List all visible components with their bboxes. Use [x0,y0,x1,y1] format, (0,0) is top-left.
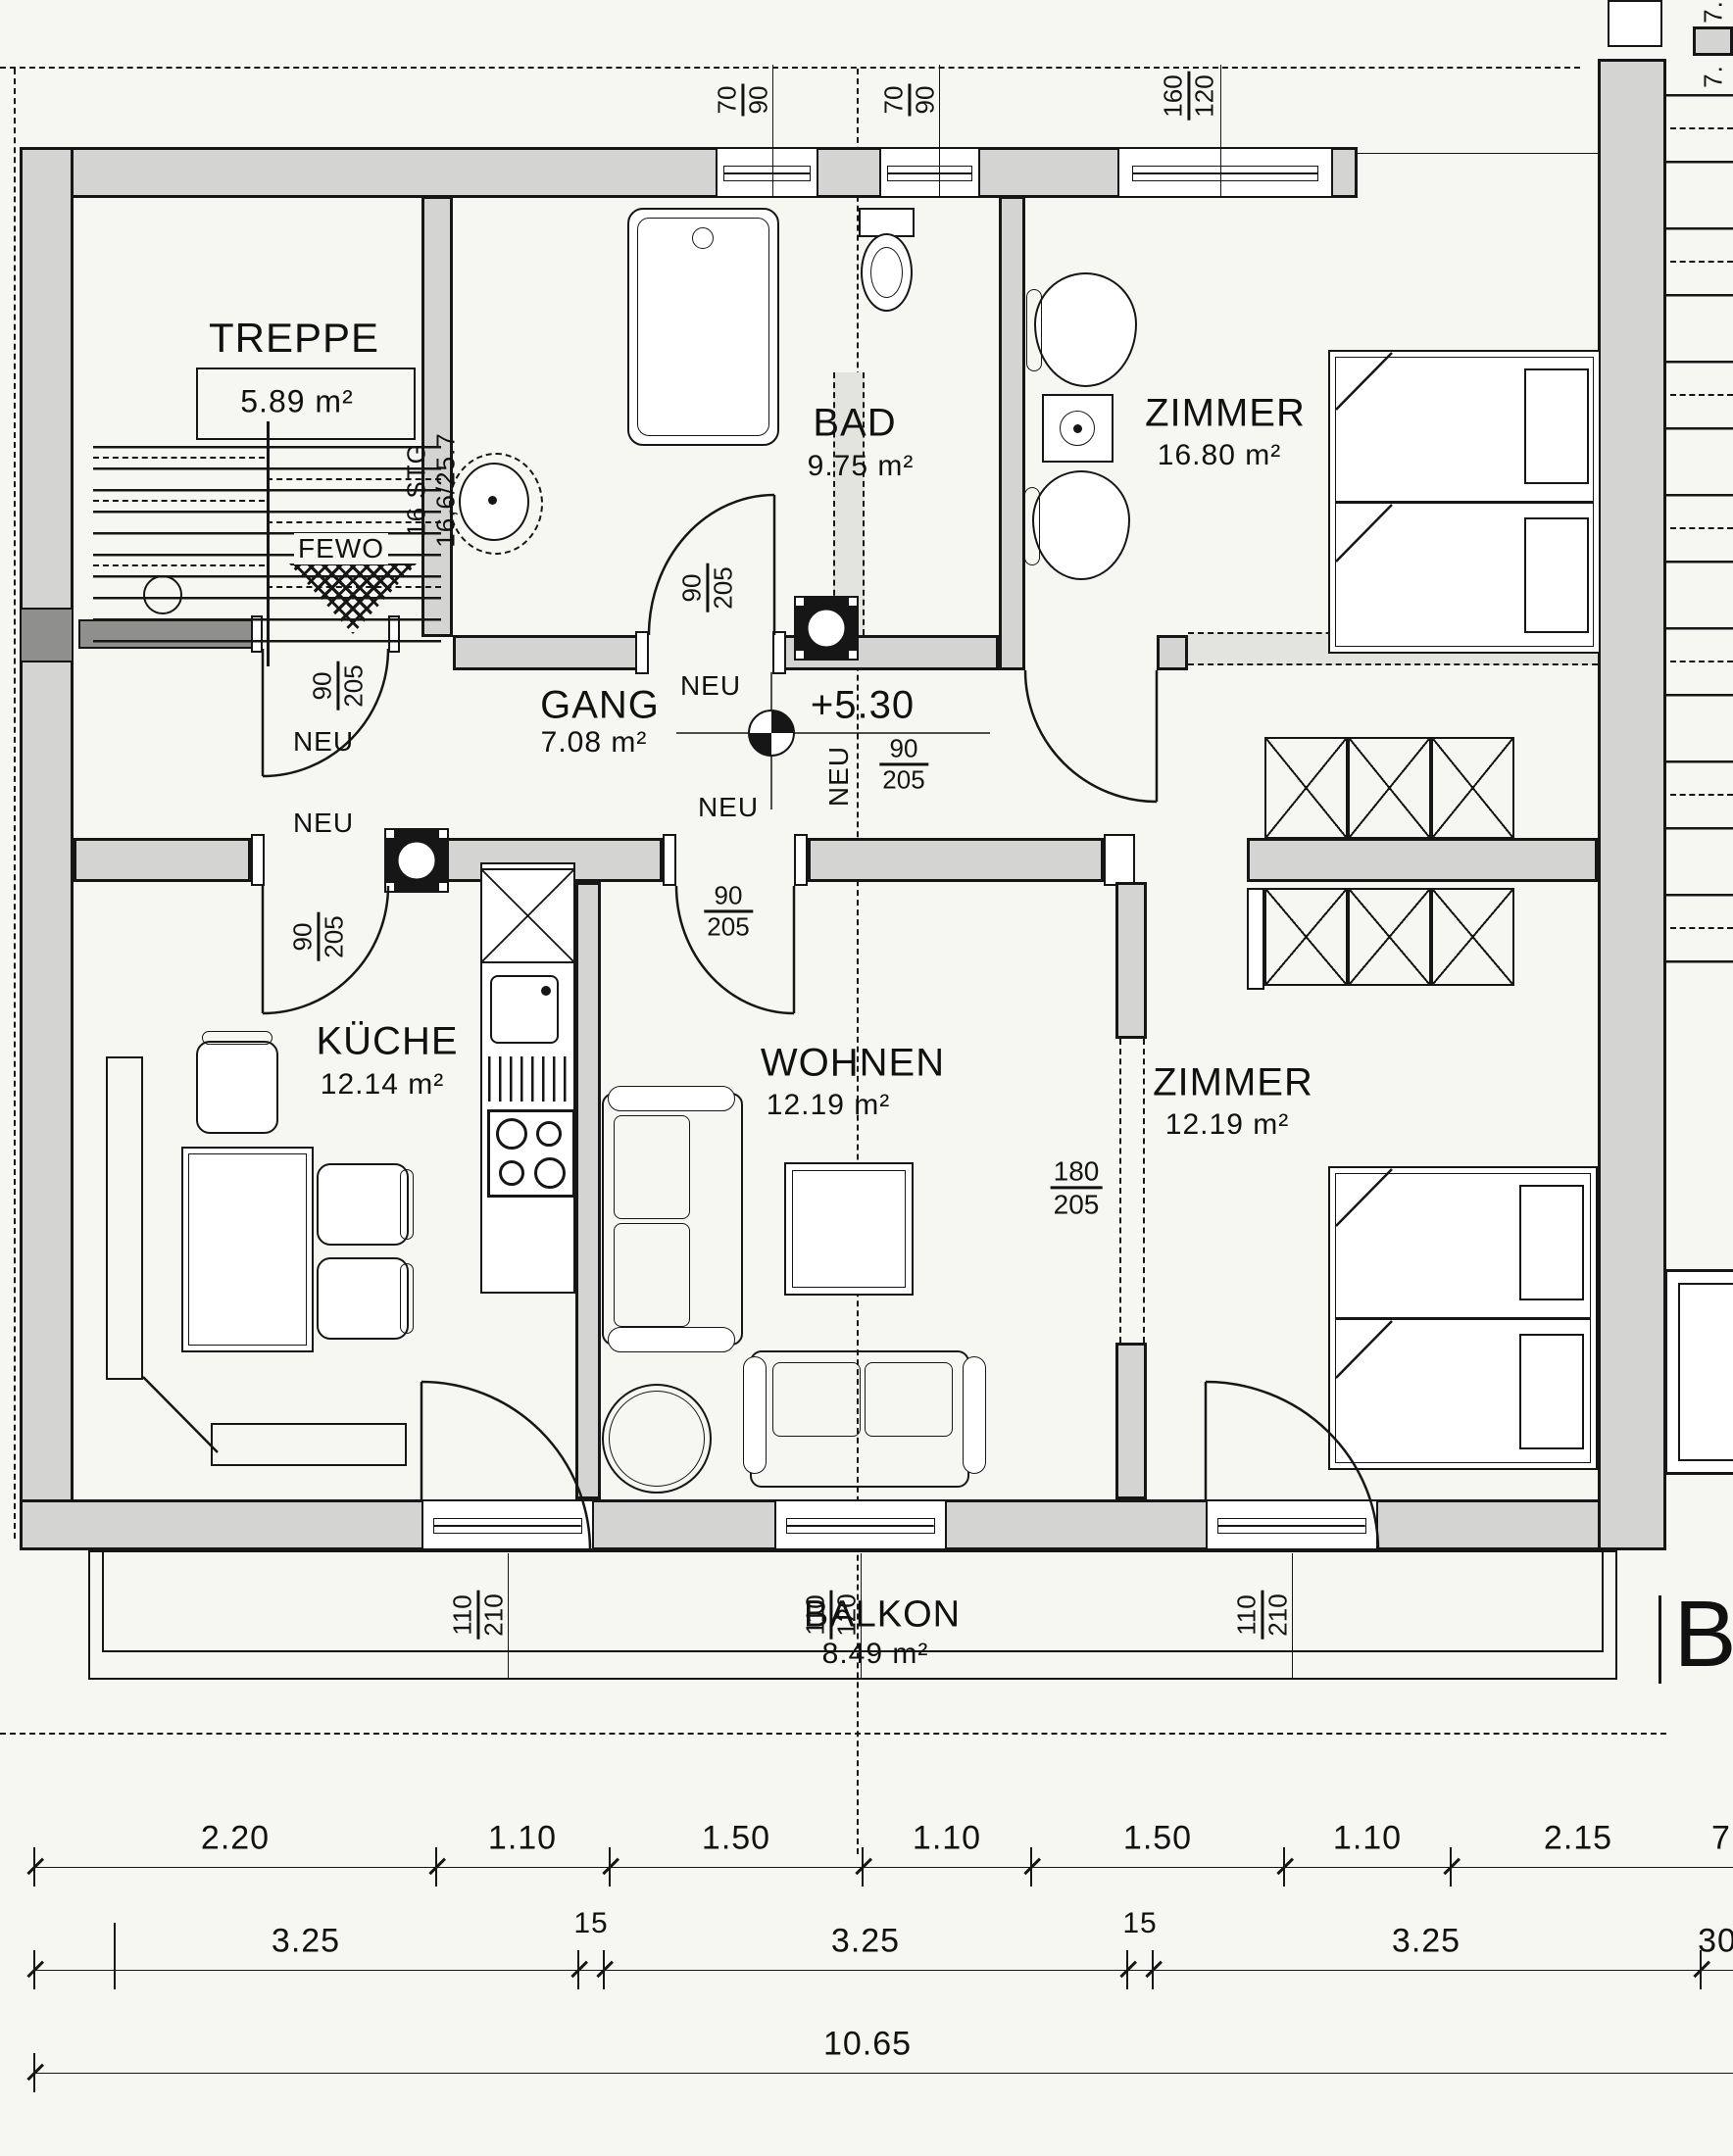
bed-fold [1336,353,1392,410]
door-dim-zimmer16: 90205 [882,735,924,793]
fewo-label: FEWO [294,533,388,564]
dim-row1-7: 7 [1711,1820,1731,1858]
edge-level-label-a: 7. [1699,0,1729,24]
exterior-stair-dash [1670,261,1733,263]
door-arc-balcony-kueche [421,1382,590,1550]
dim-row2-4: 3.25 [1392,1923,1461,1961]
section-mark-line [1659,1595,1661,1684]
door-dim-kueche: 90205 [289,915,347,957]
room-area-balkon: 8.49 m² [822,1638,929,1671]
dim-row1-0: 2.20 [201,1820,270,1858]
dim-row2-2: 3.25 [831,1923,900,1961]
floor-plan: 7090 7090 160120 110210 110120 110210 [0,0,1733,2156]
dim-row2-3: 15 [1122,1907,1157,1940]
room-area-zimmer12: 12.19 m² [1165,1108,1289,1142]
room-name-gang: GANG [540,684,660,728]
section-letter: B [1673,1581,1733,1689]
room-area-bad: 9.75 m² [808,450,915,483]
room-name-zimmer16: ZIMMER [1145,392,1306,436]
neu-label-wc: NEU [680,670,741,702]
neu-label-kueche: NEU [293,808,354,839]
neighbor-balcony-inner [1678,1283,1733,1461]
level-marker-circle [748,710,795,757]
dim-row3-0: 10.65 [823,2026,912,2064]
dim-row2-5: 30 [1698,1923,1733,1961]
neu-label-entry: NEU [293,726,354,758]
bed-fold [1336,1321,1392,1378]
dim-row1-3: 1.10 [913,1820,981,1858]
exterior-stair-dash [1670,794,1733,796]
room-name-zimmer12: ZIMMER [1153,1061,1313,1105]
room-name-kueche: KÜCHE [316,1020,458,1064]
dim-row1-line [34,1867,1733,1868]
level-marker-text: +5.30 [811,684,915,728]
room-name-bad: BAD [813,402,896,446]
dim-row1-5: 1.10 [1333,1820,1402,1858]
neu-label-zimmer16: NEU [823,746,855,807]
room-area-treppe: 5.89 m² [240,384,353,420]
bench-diagonal [143,1377,218,1452]
exterior-stair-dash [1670,394,1733,396]
door-dim-entry: 90205 [309,664,367,707]
room-name-wohnen: WOHNEN [761,1042,945,1086]
band-top-window [1608,0,1662,47]
door-arc-balcony-zimmer [1206,1382,1378,1550]
exterior-stair-treads [1666,94,1733,1015]
room-name-treppe: TREPPE [209,315,379,362]
door-arc-zimmer16 [1025,670,1157,802]
band-top-wall [1693,26,1733,56]
stair-ratio-label: 16,6/25.7 [431,432,462,547]
dim-row3-line [34,2073,1733,2074]
door-dim-wc: 90205 [678,566,736,609]
room-area-zimmer16: 16.80 m² [1158,439,1281,472]
room-name-balkon: BALKON [804,1594,961,1637]
door-arc-wc [649,495,774,635]
dim-row1-4: 1.50 [1123,1820,1192,1858]
room-area-gang: 7.08 m² [541,726,648,759]
dim-row1-1: 1.10 [488,1820,557,1858]
edge-level-label-b: 7. [1699,65,1729,88]
neu-label-wohnen: NEU [698,792,759,823]
bed-fold [1336,1169,1392,1226]
dim-row1-6: 2.15 [1544,1820,1612,1858]
dim-row2-1: 15 [573,1907,608,1940]
dim-row2-line [34,1970,1733,1971]
stair-steps-label: 16 STG [402,443,432,537]
exterior-stair-dash [1670,527,1733,529]
exterior-stair-dash [1670,661,1733,662]
room-area-wohnen: 12.19 m² [767,1089,890,1122]
dim-row2-0: 3.25 [272,1923,340,1961]
door-dim-wohnen: 90205 [707,882,749,940]
exterior-stair-dash [1670,927,1733,929]
dim-row1-2: 1.50 [702,1820,770,1858]
bed-fold [1336,505,1392,562]
room-area-kueche: 12.14 m² [321,1068,444,1102]
exterior-stair-dash [1670,127,1733,129]
